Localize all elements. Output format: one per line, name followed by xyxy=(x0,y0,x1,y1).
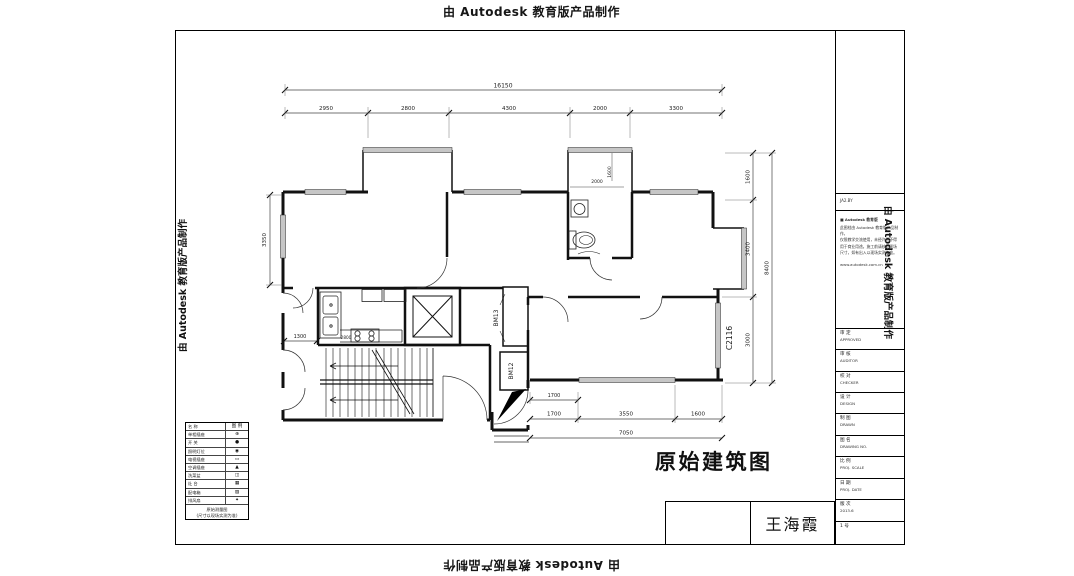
row-label-en: PROJ. DATE xyxy=(840,487,905,492)
legend-row: 配电箱▨ xyxy=(186,489,248,497)
title-block-strip: JA2.BY ■ Autodesk 教育版 此图档由 Autodesk 教育版产… xyxy=(835,30,905,545)
legend-symbol: ▨ xyxy=(226,489,248,496)
drawing-title: 原始建筑图 xyxy=(655,446,773,476)
drawing-sheet: 16150 2950 2800 4300 2000 3300 3350 1300… xyxy=(0,0,1074,576)
legend-symbol: ▭ xyxy=(226,456,248,463)
notes-line: www.autodesk.com.cn xyxy=(840,262,902,268)
title-block-row: 制 图DRAWN xyxy=(836,414,905,435)
notes-line: 仅限教学交流使用，未经许可不得 xyxy=(840,237,902,243)
row-label-cn: 1 号 xyxy=(840,524,905,530)
watermark-left: 由 Autodesk 教育版产品制作 xyxy=(175,219,189,352)
notes-line: ■ Autodesk 教育版 xyxy=(840,217,902,223)
title-block-row: 日 期PROJ. DATE xyxy=(836,479,905,500)
legend-symbol: ✦ xyxy=(226,497,248,504)
legend-symbol: ⊕ xyxy=(226,431,248,438)
legend-symbol: 图 例 xyxy=(226,423,248,430)
notes-line: 用于商业用途。施工前请核对现场 xyxy=(840,244,902,250)
legend-name: 配电箱 xyxy=(186,489,226,496)
legend-name: 电视插座 xyxy=(186,456,226,463)
signature-empty-cell xyxy=(666,502,750,544)
row-label-en: 2013.6 xyxy=(840,508,905,513)
watermark-bottom: 由 Autodesk 教育版产品制作 xyxy=(443,557,620,574)
signature-name: 王海霞 xyxy=(750,502,834,544)
row-label-en: AUDITOR xyxy=(840,358,905,363)
watermark-top: 由 Autodesk 教育版产品制作 xyxy=(443,3,620,20)
legend-row: 电视插座▭ xyxy=(186,456,248,464)
legend-footer: 原始测量图 (尺寸以现场实测为准) xyxy=(186,505,248,520)
legend-name: 单相插座 xyxy=(186,431,226,438)
legend-name: 照明灯位 xyxy=(186,448,226,455)
legend-name: 排风扇 xyxy=(186,497,226,504)
legend-row: 照明灯位◉ xyxy=(186,448,248,456)
legend-row: 灶 台▦ xyxy=(186,480,248,488)
legend-name: 洗菜盆 xyxy=(186,472,226,479)
legend-row: 洗菜盆◫ xyxy=(186,472,248,480)
legend-symbol: ▲ xyxy=(226,464,248,471)
legend-symbol: ● xyxy=(226,439,248,446)
legend-name: 灶 台 xyxy=(186,480,226,487)
legend-row: 开 关● xyxy=(186,439,248,447)
row-label-en: DESIGN xyxy=(840,401,905,406)
notes-line: 尺寸，如有出入以现场实测为准。 xyxy=(840,250,902,256)
legend-name: 名 称 xyxy=(186,423,226,430)
legend-symbol: ▦ xyxy=(226,480,248,487)
title-block-row: 审 定APPROVED xyxy=(836,329,905,350)
title-block-row: 版 次2013.6 xyxy=(836,500,905,521)
legend-symbol: ◉ xyxy=(226,448,248,455)
title-block-row: 比 例PROJ. SCALE xyxy=(836,457,905,478)
signature-box: 王海霞 xyxy=(665,501,835,545)
legend-row: 名 称图 例 xyxy=(186,423,248,431)
legend-row: 排风扇✦ xyxy=(186,497,248,505)
legend-row: 空调插座▲ xyxy=(186,464,248,472)
legend-row: 单相插座⊕ xyxy=(186,431,248,439)
legend-table: 名 称图 例 单相插座⊕ 开 关● 照明灯位◉ 电视插座▭ 空调插座▲ 洗菜盆◫… xyxy=(185,422,249,520)
notes-line: 此图档由 Autodesk 教育版产品制作， xyxy=(840,225,902,237)
row-label-en: APPROVED xyxy=(840,337,905,342)
legend-name: 空调插座 xyxy=(186,464,226,471)
title-block-row: 图 名DRAWING NO. xyxy=(836,436,905,457)
row-label-en: CHECKER xyxy=(840,380,905,385)
title-block-empty-cell xyxy=(836,30,905,194)
title-block-row: 校 对CHECKER xyxy=(836,372,905,393)
row-label-en: DRAWN xyxy=(840,422,905,427)
title-block-code: JA2.BY xyxy=(836,194,905,211)
row-label-en: DRAWING NO. xyxy=(840,444,905,449)
title-block-row: 设 计DESIGN xyxy=(836,393,905,414)
title-block-row: 审 核AUDITOR xyxy=(836,350,905,371)
title-block-notes: ■ Autodesk 教育版 此图档由 Autodesk 教育版产品制作， 仅限… xyxy=(836,211,905,329)
title-block-row: 1 号 xyxy=(836,522,905,545)
legend-name: 开 关 xyxy=(186,439,226,446)
row-label-en: PROJ. SCALE xyxy=(840,465,905,470)
legend-symbol: ◫ xyxy=(226,472,248,479)
sheet-frame xyxy=(175,30,905,545)
legend-footer-line2: (尺寸以现场实测为准) xyxy=(186,513,248,519)
